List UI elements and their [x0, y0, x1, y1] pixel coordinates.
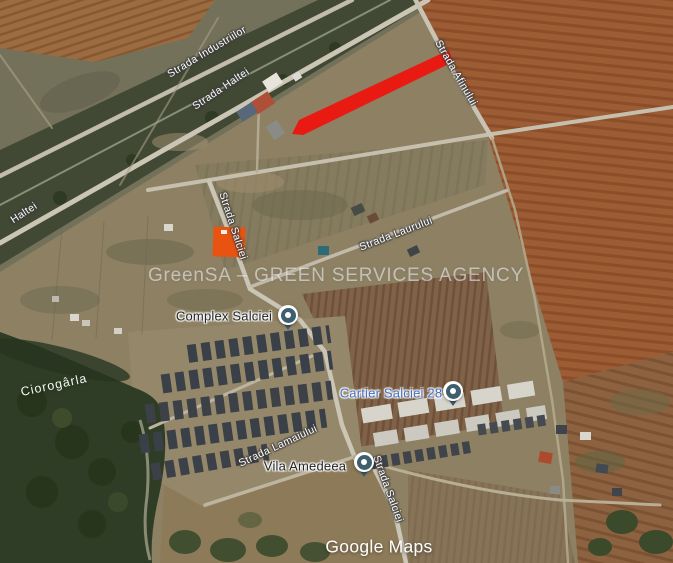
poi-pin-cartier-salciei-28[interactable]	[443, 381, 463, 401]
orange-building	[212, 226, 245, 257]
poi-pin-complex-salciei[interactable]	[278, 305, 298, 325]
poi-label-vila-amedeea[interactable]: Vila Amedeea	[264, 459, 346, 474]
google-maps-logo[interactable]: GoogleMaps	[325, 537, 432, 558]
satellite-layer	[0, 0, 673, 563]
poi-label-complex-salciei[interactable]: Complex Salciei	[176, 309, 272, 324]
pin-dot	[450, 388, 456, 394]
poi-pin-vila-amedeea[interactable]	[354, 452, 374, 472]
pin-dot	[285, 312, 291, 318]
maps-logo-text: Maps	[389, 537, 433, 557]
google-logo-text: Google	[325, 537, 383, 557]
poi-label-cartier-salciei-28[interactable]: Cartier Salciei 28	[340, 386, 443, 401]
map-canvas[interactable]: Strada Industriilor Strada Haltei Haltei…	[0, 0, 673, 563]
pin-dot	[361, 459, 367, 465]
